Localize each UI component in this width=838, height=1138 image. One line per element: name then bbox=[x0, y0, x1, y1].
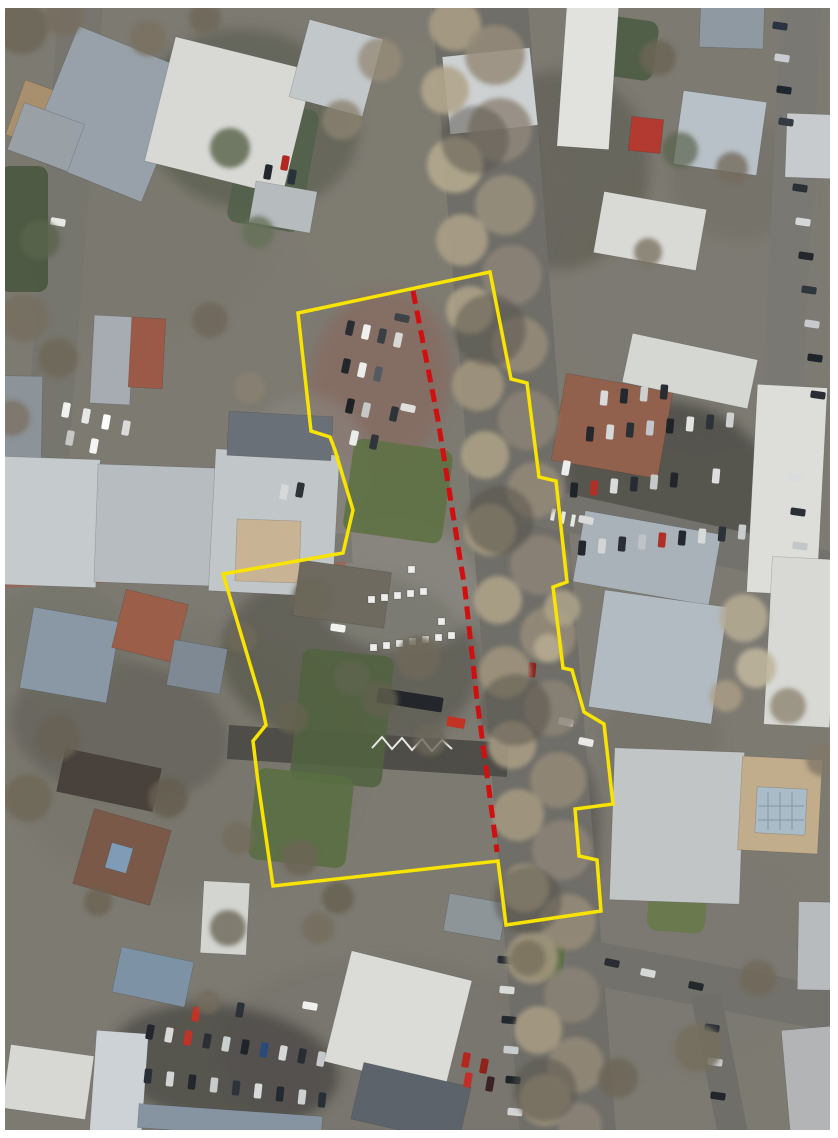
stall bbox=[381, 594, 388, 601]
tree-canopy bbox=[544, 590, 580, 626]
car bbox=[499, 986, 515, 995]
building-roof bbox=[227, 411, 333, 460]
tree-canopy bbox=[20, 220, 60, 260]
car bbox=[698, 528, 707, 544]
tree-canopy bbox=[461, 431, 509, 479]
stall bbox=[407, 590, 414, 597]
tree-canopy bbox=[736, 648, 776, 688]
tree-canopy bbox=[210, 910, 246, 946]
tree-canopy bbox=[479, 674, 551, 746]
building-roof bbox=[797, 902, 838, 991]
tree-canopy bbox=[452, 359, 504, 411]
tree-canopy bbox=[234, 372, 266, 404]
car bbox=[590, 480, 599, 496]
tree-canopy bbox=[322, 882, 354, 914]
car bbox=[646, 420, 655, 436]
tree-canopy bbox=[770, 688, 806, 724]
tree-canopy bbox=[421, 66, 469, 114]
car bbox=[209, 1077, 218, 1093]
building-roof bbox=[699, 0, 765, 49]
tree-canopy bbox=[740, 960, 776, 996]
car bbox=[253, 1083, 262, 1099]
stall bbox=[435, 634, 442, 641]
tree-canopy bbox=[362, 682, 398, 718]
tree-canopy bbox=[276, 702, 308, 734]
tree-canopy bbox=[475, 175, 535, 235]
tree-canopy bbox=[38, 338, 78, 378]
car bbox=[600, 390, 609, 406]
car bbox=[275, 1086, 284, 1102]
tree-canopy bbox=[4, 774, 52, 822]
tree-canopy bbox=[510, 940, 546, 976]
car bbox=[606, 424, 615, 440]
tree-canopy bbox=[441, 106, 509, 174]
stall bbox=[448, 632, 455, 639]
tree-canopy bbox=[513, 1058, 577, 1122]
tree-canopy bbox=[334, 660, 370, 696]
aerial-scene bbox=[0, 0, 838, 1138]
tree-canopy bbox=[466, 486, 534, 554]
car bbox=[231, 1080, 240, 1096]
tree-canopy bbox=[436, 214, 488, 266]
car bbox=[650, 474, 659, 490]
tree-canopy bbox=[222, 822, 254, 854]
building-roof bbox=[128, 317, 166, 389]
building-roof bbox=[588, 590, 727, 724]
car bbox=[586, 426, 595, 442]
tree-canopy bbox=[210, 128, 250, 168]
car bbox=[686, 416, 695, 432]
car bbox=[660, 384, 669, 400]
building-roof bbox=[90, 315, 135, 405]
car bbox=[297, 1089, 306, 1105]
car bbox=[640, 386, 649, 402]
car bbox=[626, 422, 635, 438]
tree-canopy bbox=[130, 20, 166, 56]
building-roof bbox=[781, 1026, 838, 1138]
tree-canopy bbox=[474, 576, 522, 624]
car bbox=[165, 1071, 174, 1087]
car bbox=[678, 530, 687, 546]
stall bbox=[394, 592, 401, 599]
stall bbox=[368, 596, 375, 603]
car bbox=[570, 482, 579, 498]
car bbox=[187, 1074, 196, 1090]
car bbox=[738, 524, 747, 540]
car bbox=[666, 418, 675, 434]
building-roof bbox=[235, 519, 301, 583]
tree-canopy bbox=[292, 578, 332, 618]
site-plan-figure bbox=[0, 0, 838, 1138]
tree-canopy bbox=[674, 1024, 722, 1072]
tree-canopy bbox=[36, 716, 80, 760]
lawn bbox=[342, 437, 454, 544]
building-roof bbox=[755, 787, 807, 836]
tree-canopy bbox=[358, 38, 402, 82]
car bbox=[726, 412, 735, 428]
tree-canopy bbox=[0, 294, 48, 342]
tree-canopy bbox=[282, 840, 318, 876]
building-roof bbox=[557, 0, 619, 150]
stall bbox=[370, 644, 377, 651]
building-roof bbox=[609, 748, 744, 904]
car bbox=[598, 538, 607, 554]
car bbox=[620, 388, 629, 404]
tree-canopy bbox=[84, 888, 112, 916]
tree-canopy bbox=[322, 100, 362, 140]
car bbox=[658, 532, 667, 548]
car bbox=[503, 1046, 519, 1055]
aerial-photo bbox=[0, 0, 838, 1138]
tree-canopy bbox=[634, 238, 662, 266]
building-roof bbox=[20, 607, 121, 703]
tree-canopy bbox=[716, 152, 748, 184]
building-roof bbox=[628, 116, 663, 153]
building-roof bbox=[0, 456, 100, 587]
car bbox=[638, 534, 647, 550]
building-roof bbox=[94, 464, 216, 586]
tree-canopy bbox=[192, 302, 228, 338]
tree-canopy bbox=[640, 40, 676, 76]
tree-canopy bbox=[242, 216, 274, 248]
car bbox=[610, 478, 619, 494]
stall bbox=[420, 588, 427, 595]
tree-canopy bbox=[454, 294, 526, 366]
car bbox=[670, 472, 679, 488]
tree-canopy bbox=[720, 594, 768, 642]
tree-canopy bbox=[598, 1058, 638, 1098]
tree-canopy bbox=[189, 2, 221, 34]
stall bbox=[383, 642, 390, 649]
tree-canopy bbox=[148, 778, 188, 818]
tree-canopy bbox=[396, 636, 440, 680]
car bbox=[718, 526, 727, 542]
tree-canopy bbox=[492, 789, 544, 841]
tree-canopy bbox=[710, 680, 742, 712]
car bbox=[501, 1016, 517, 1025]
tree-canopy bbox=[465, 25, 525, 85]
building-roof bbox=[2, 1044, 94, 1119]
tree-canopy bbox=[806, 744, 838, 776]
tree-canopy bbox=[196, 990, 220, 1014]
car bbox=[706, 414, 715, 430]
car bbox=[143, 1068, 152, 1084]
stall bbox=[408, 566, 415, 573]
car bbox=[712, 468, 721, 484]
building-roof bbox=[166, 640, 227, 695]
car bbox=[618, 536, 627, 552]
car bbox=[578, 540, 587, 556]
tree-canopy bbox=[302, 912, 334, 944]
tree-canopy bbox=[662, 132, 698, 168]
stall bbox=[438, 618, 445, 625]
car bbox=[317, 1092, 326, 1108]
tree-canopy bbox=[414, 724, 446, 756]
car bbox=[630, 476, 639, 492]
